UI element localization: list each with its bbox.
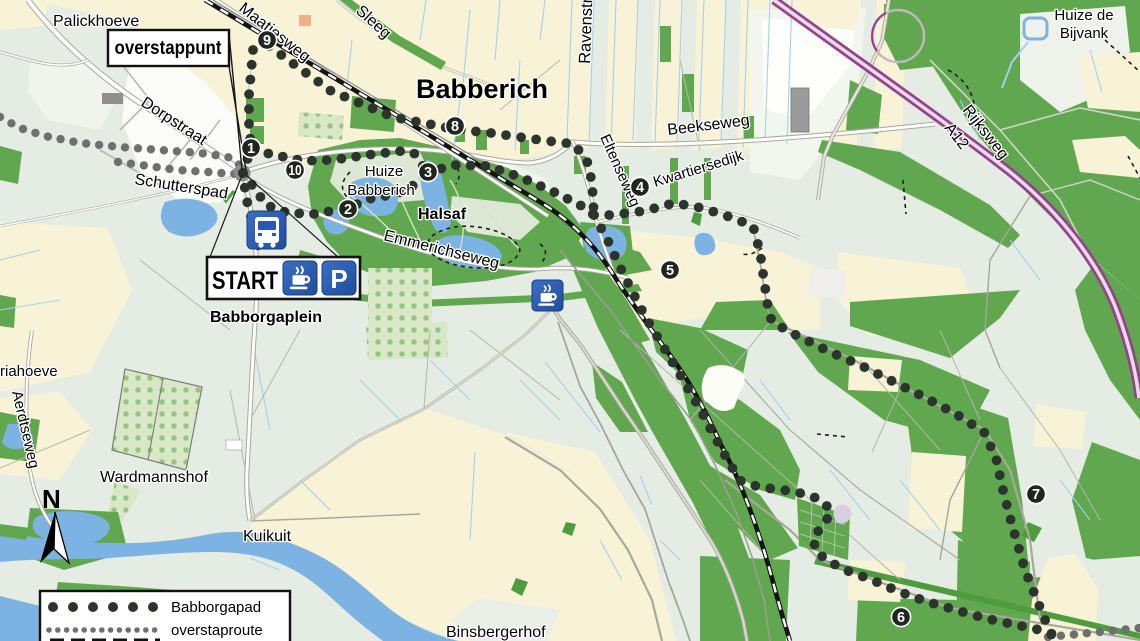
svg-text:Halsaf: Halsaf	[418, 206, 467, 223]
svg-text:overstaproute: overstaproute	[171, 622, 263, 639]
svg-text:Babberich: Babberich	[347, 182, 415, 199]
svg-text:6: 6	[897, 610, 905, 626]
svg-text:1: 1	[247, 141, 255, 157]
svg-text:Babborgaplein: Babborgaplein	[210, 309, 322, 326]
svg-text:9: 9	[263, 33, 271, 49]
svg-text:Huize: Huize	[365, 163, 403, 180]
svg-text:8: 8	[451, 119, 459, 135]
svg-text:Palickhoeve: Palickhoeve	[53, 13, 139, 30]
svg-text:Huize de: Huize de	[1054, 7, 1113, 24]
svg-text:N: N	[42, 484, 61, 514]
svg-text:Binsbergerhof: Binsbergerhof	[446, 624, 546, 641]
svg-text:Kuikuit: Kuikuit	[243, 528, 292, 545]
svg-text:5: 5	[666, 263, 674, 279]
svg-text:P: P	[330, 264, 347, 294]
svg-text:Babborgapad: Babborgapad	[171, 599, 261, 616]
svg-text:4: 4	[636, 180, 644, 196]
svg-text:3: 3	[424, 165, 432, 181]
svg-text:Wardmannshof: Wardmannshof	[100, 469, 208, 486]
svg-text:2: 2	[344, 202, 352, 218]
svg-text:Ravenstraat: Ravenstraat	[576, 0, 597, 64]
svg-text:Bijvank: Bijvank	[1060, 25, 1109, 42]
svg-text:overstappunt: overstappunt	[115, 38, 223, 59]
svg-text:Babberich: Babberich	[416, 74, 548, 104]
svg-text:10: 10	[288, 163, 302, 179]
svg-text:START: START	[212, 267, 278, 295]
svg-text:7: 7	[1032, 487, 1040, 503]
svg-text:riahoeve: riahoeve	[0, 363, 58, 380]
